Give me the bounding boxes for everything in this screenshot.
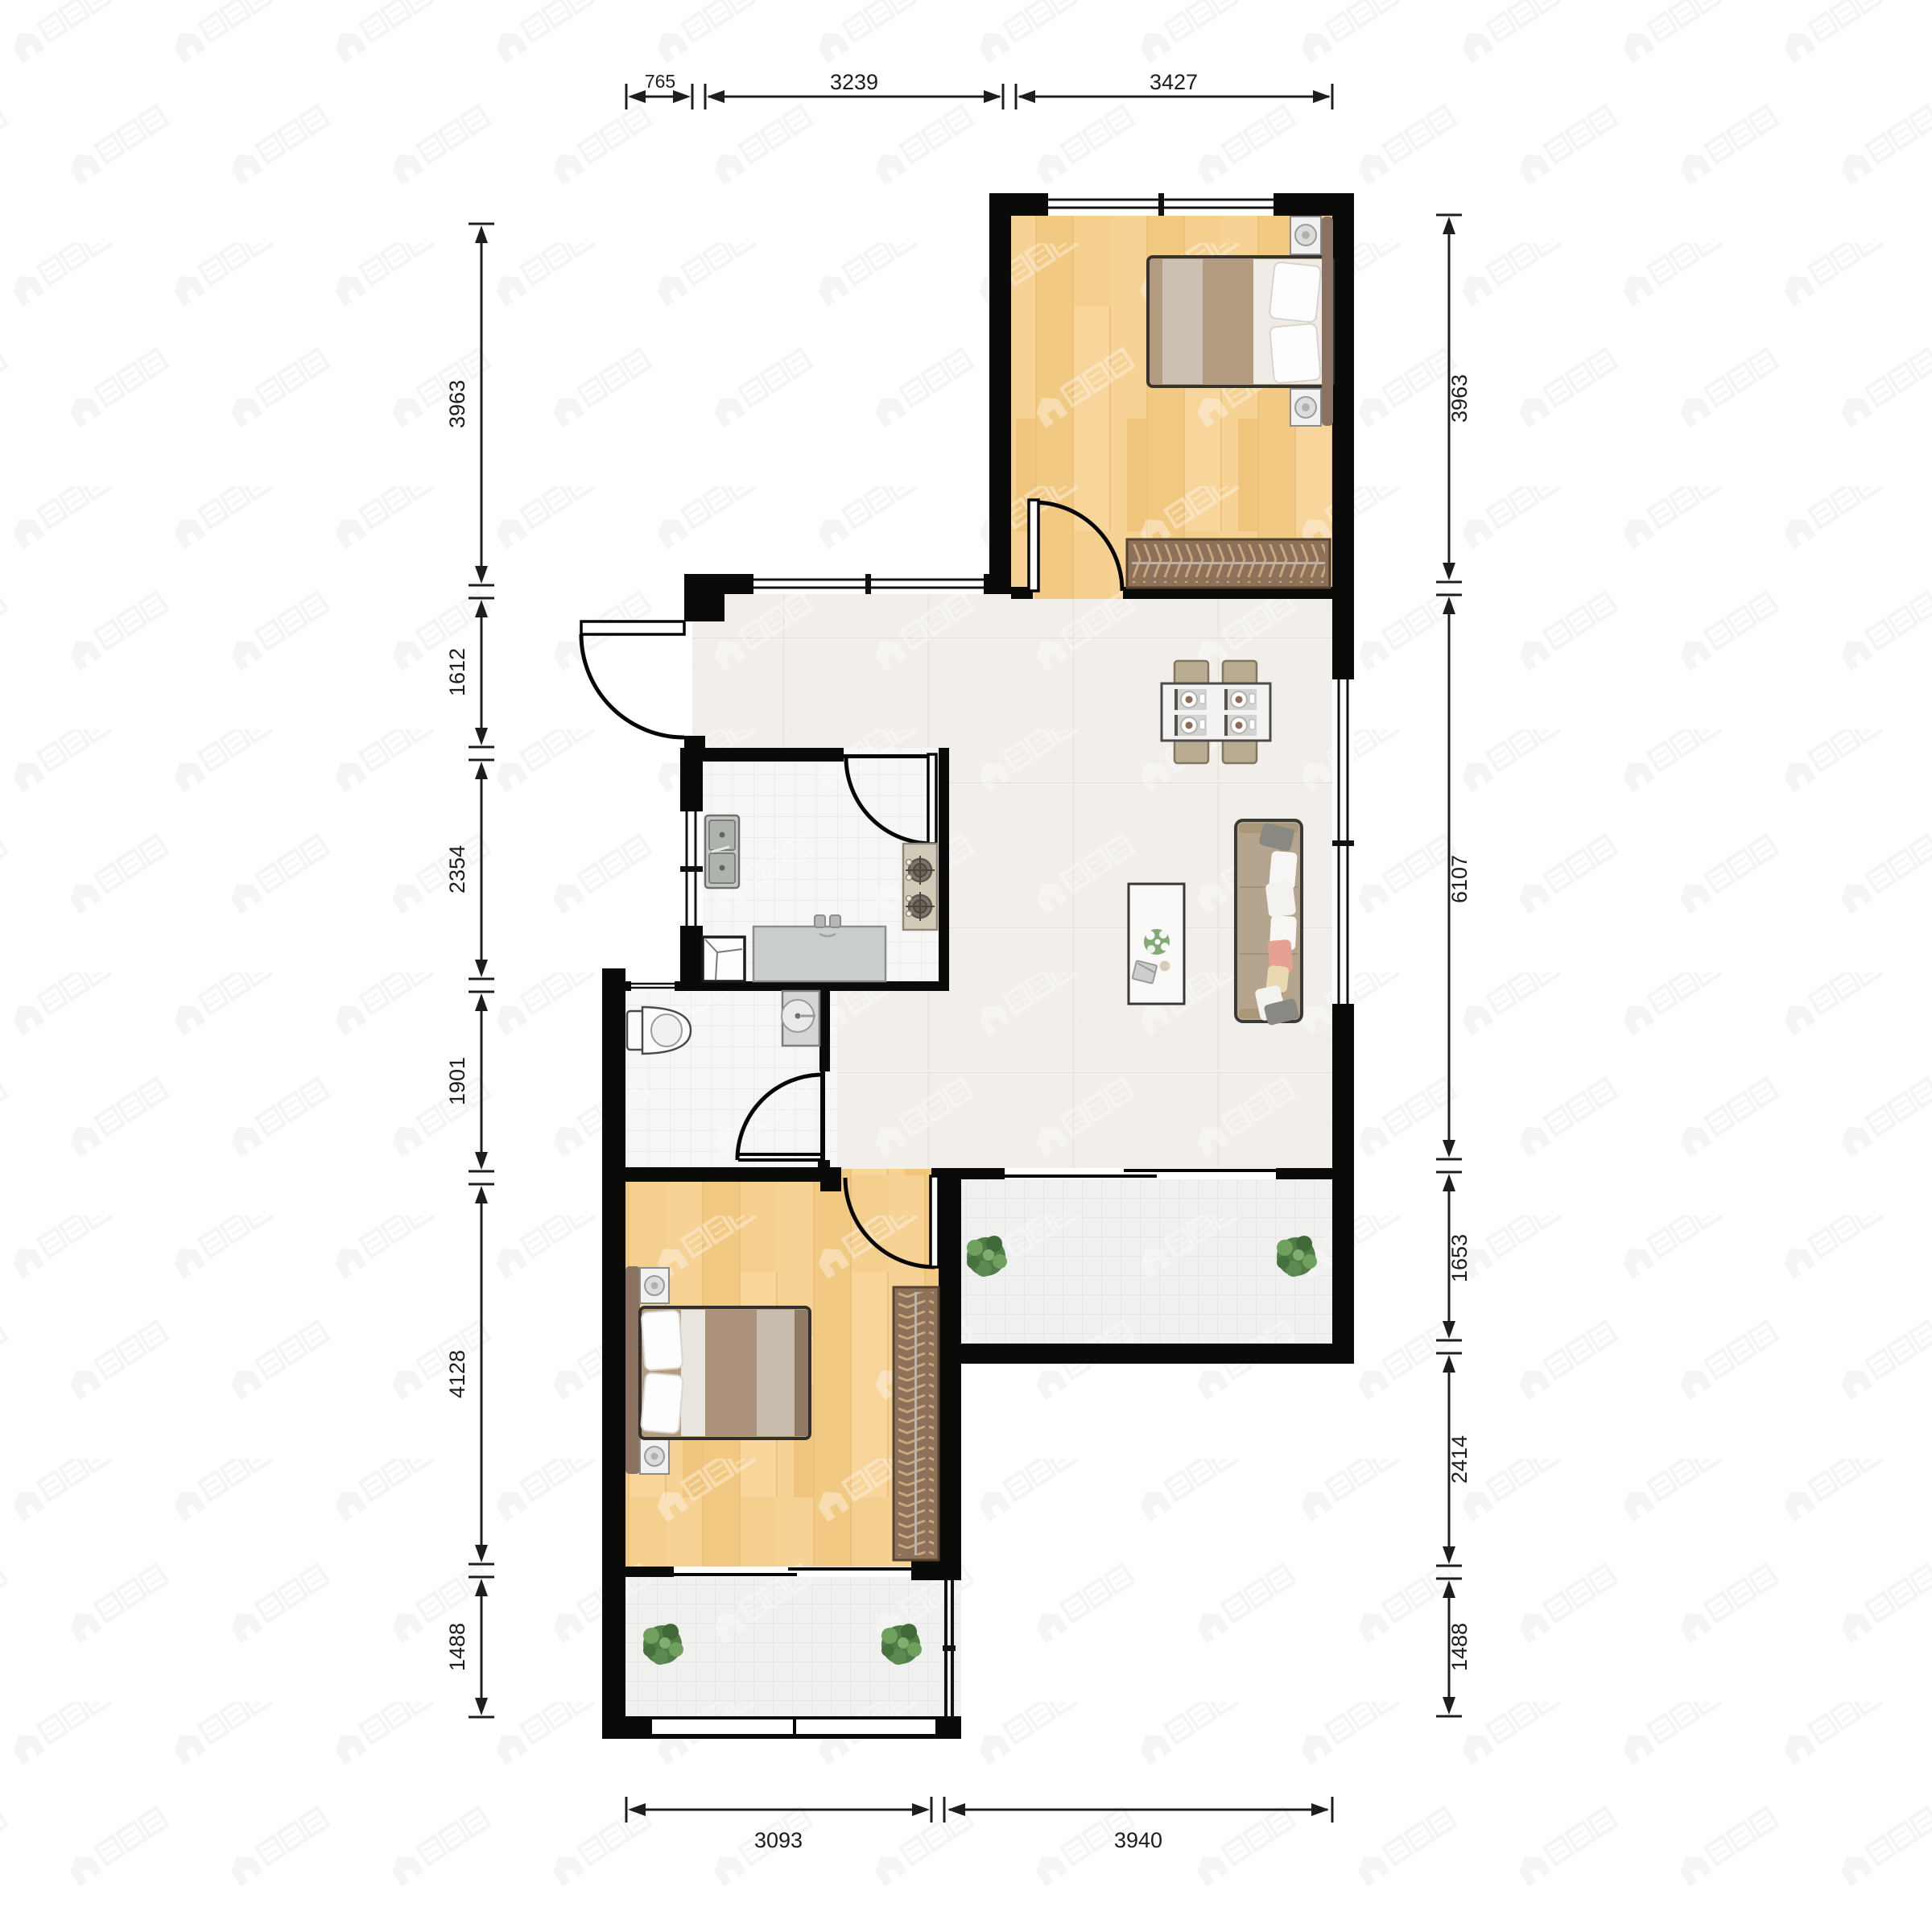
svg-text:765: 765 <box>645 71 675 92</box>
svg-text:3963: 3963 <box>1447 374 1472 423</box>
svg-text:1488: 1488 <box>445 1623 469 1671</box>
svg-text:1488: 1488 <box>1447 1623 1472 1671</box>
svg-text:1653: 1653 <box>1447 1234 1472 1282</box>
svg-text:3427: 3427 <box>1150 70 1198 94</box>
svg-text:1901: 1901 <box>445 1057 469 1105</box>
svg-text:6107: 6107 <box>1447 855 1472 903</box>
svg-text:4128: 4128 <box>445 1350 469 1398</box>
svg-text:1612: 1612 <box>445 648 469 696</box>
svg-text:3093: 3093 <box>754 1828 803 1852</box>
svg-text:3239: 3239 <box>830 70 878 94</box>
svg-text:3940: 3940 <box>1114 1828 1162 1852</box>
svg-text:3963: 3963 <box>445 380 469 428</box>
svg-text:2414: 2414 <box>1447 1435 1472 1484</box>
svg-text:2354: 2354 <box>445 845 469 894</box>
